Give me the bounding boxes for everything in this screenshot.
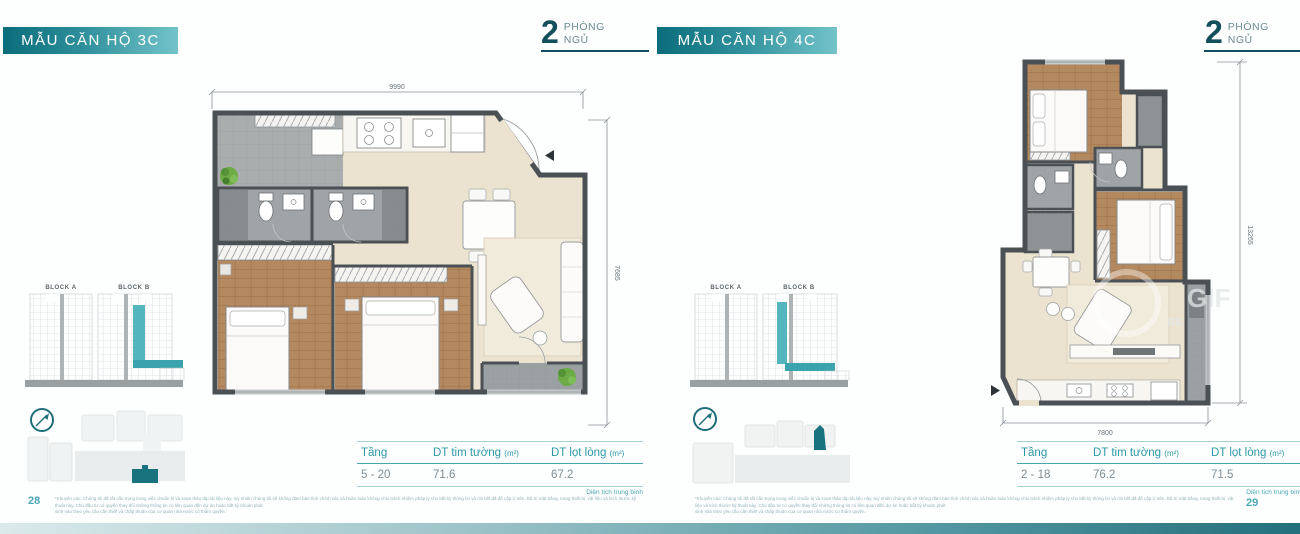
- compass-icon: [694, 408, 716, 430]
- floorplan-3c: 9990 7685: [195, 80, 640, 435]
- unit-stack-highlight: [777, 302, 787, 364]
- tower-block-a: [695, 294, 757, 380]
- bathroom-2: [1095, 148, 1142, 188]
- entry-corridor: [215, 113, 343, 188]
- block-a-label: BLOCK A: [710, 285, 741, 291]
- dim-height-label: 13265: [1246, 225, 1253, 245]
- col-gross: DT tim tường (m²): [1093, 447, 1211, 459]
- bedroom-number: 2: [1205, 17, 1223, 47]
- unit-3c-bedroom-count: 2 PHÒNG NGỦ: [541, 17, 605, 47]
- table-note: Diện tích trung bình: [1017, 487, 1300, 496]
- disclaimer-left: *Khuyến cáo: Chúng tôi đã rất cẩn trọng …: [55, 496, 641, 516]
- entry-arrow-icon: [545, 150, 554, 161]
- site-key-4c: [685, 403, 860, 493]
- table-row: 2 - 18 76.2 71.5: [1017, 464, 1300, 487]
- dimension-width: [209, 89, 586, 109]
- dim-width-label: 9990: [389, 84, 405, 91]
- bathroom-1: [1025, 165, 1073, 209]
- podium-base: [690, 380, 848, 387]
- gross-area-value: 76.2: [1093, 469, 1211, 481]
- floors-value: 2 - 18: [1021, 469, 1093, 481]
- kitchen: [343, 113, 485, 152]
- bedroom-words: PHÒNG NGỦ: [564, 17, 605, 46]
- unit-row-highlight: [785, 363, 835, 371]
- brochure-page: MẪU CĂN HỘ 3C 2 PHÒNG NGỦ: [0, 0, 1300, 534]
- col-net: DT lọt lòng (m²): [1211, 447, 1300, 459]
- area-table-4c: Tầng DT tim tường (m²) DT lọt lòng (m²) …: [1017, 441, 1300, 496]
- tv-console: [478, 255, 486, 325]
- disclaimer-right: *Khuyến cáo: Chúng tôi đã rất cẩn trọng …: [695, 496, 1235, 516]
- tower-block-b: [763, 294, 849, 380]
- footer-accent-bar: [0, 523, 1300, 534]
- table-header: Tầng DT tim tường (m²) DT lọt lòng (m²): [1017, 442, 1300, 464]
- siteplan-footprint: [693, 421, 850, 483]
- unit-row-highlight: [133, 360, 183, 368]
- plant-icon: [220, 167, 238, 185]
- bedroom-2: [335, 267, 471, 392]
- bedroom-words: PHÒNG NGỦ: [1228, 17, 1269, 46]
- bathrooms: [218, 188, 407, 242]
- table-row: 5 - 20 71.6 67.2: [357, 464, 643, 487]
- living-room: [478, 238, 583, 356]
- block-a-label: BLOCK A: [45, 285, 76, 291]
- page-number-right: 29: [1246, 497, 1258, 509]
- elevation-key-3c: BLOCK A BLOCK B: [20, 278, 185, 400]
- bedroom-number: 2: [541, 17, 559, 47]
- net-area-value: 67.2: [551, 469, 647, 481]
- tower-block-a: [30, 294, 92, 380]
- dimension-height: [588, 117, 610, 428]
- unit-stack-highlight: [133, 305, 145, 360]
- block-b-label: BLOCK B: [118, 285, 150, 291]
- table-header: Tầng DT tim tường (m²) DT lọt lòng (m²): [357, 442, 643, 464]
- tower-block-b: [98, 294, 184, 380]
- site-key-3c: [20, 403, 195, 493]
- dimension-width: [1000, 407, 1211, 426]
- unit-3c-title: MẪU CĂN HỘ 3C: [21, 32, 160, 49]
- page-number-left: 28: [28, 495, 40, 507]
- unit-location-highlight: [132, 469, 158, 483]
- podium-base: [25, 380, 183, 387]
- plant-icon: [558, 368, 576, 386]
- watermark-text-2: RE: [1167, 317, 1182, 329]
- dim-width-label: 7800: [1097, 430, 1113, 437]
- col-floor: Tầng: [361, 447, 433, 459]
- dimension-height: [1212, 59, 1247, 406]
- elevation-key-4c: BLOCK A BLOCK B: [685, 278, 850, 400]
- bedroom-underline: [541, 50, 649, 52]
- unit-4c-bedroom-count: 2 PHÒNG NGỦ: [1205, 17, 1269, 47]
- entry-arrow-icon: [991, 385, 1000, 396]
- floors-value: 5 - 20: [361, 469, 433, 481]
- col-floor: Tầng: [1021, 447, 1093, 459]
- unit-4c-title: MẪU CĂN HỘ 4C: [678, 32, 817, 49]
- net-area-value: 71.5: [1211, 469, 1300, 481]
- col-gross: DT tim tường (m²): [433, 447, 551, 459]
- kitchen: [1017, 380, 1180, 401]
- table-note: Diện tích trung bình: [357, 487, 643, 496]
- bedroom-2: [1095, 192, 1183, 280]
- dim-height-label: 7685: [613, 265, 620, 281]
- utility-room: [1025, 212, 1073, 252]
- compass-icon: [31, 409, 53, 431]
- shower-room: [1137, 95, 1163, 147]
- floorplan-4c: 7800 13265: [955, 45, 1300, 445]
- col-net: DT lọt lòng (m²): [551, 447, 647, 459]
- block-b-label: BLOCK B: [783, 285, 815, 291]
- unit-3c-title-banner: MẪU CĂN HỘ 3C: [3, 27, 178, 54]
- unit-4c-title-banner: MẪU CĂN HỘ 4C: [657, 27, 837, 54]
- area-table-3c: Tầng DT tim tường (m²) DT lọt lòng (m²) …: [357, 441, 643, 496]
- bedroom-1: [218, 245, 332, 392]
- gross-area-value: 71.6: [433, 469, 551, 481]
